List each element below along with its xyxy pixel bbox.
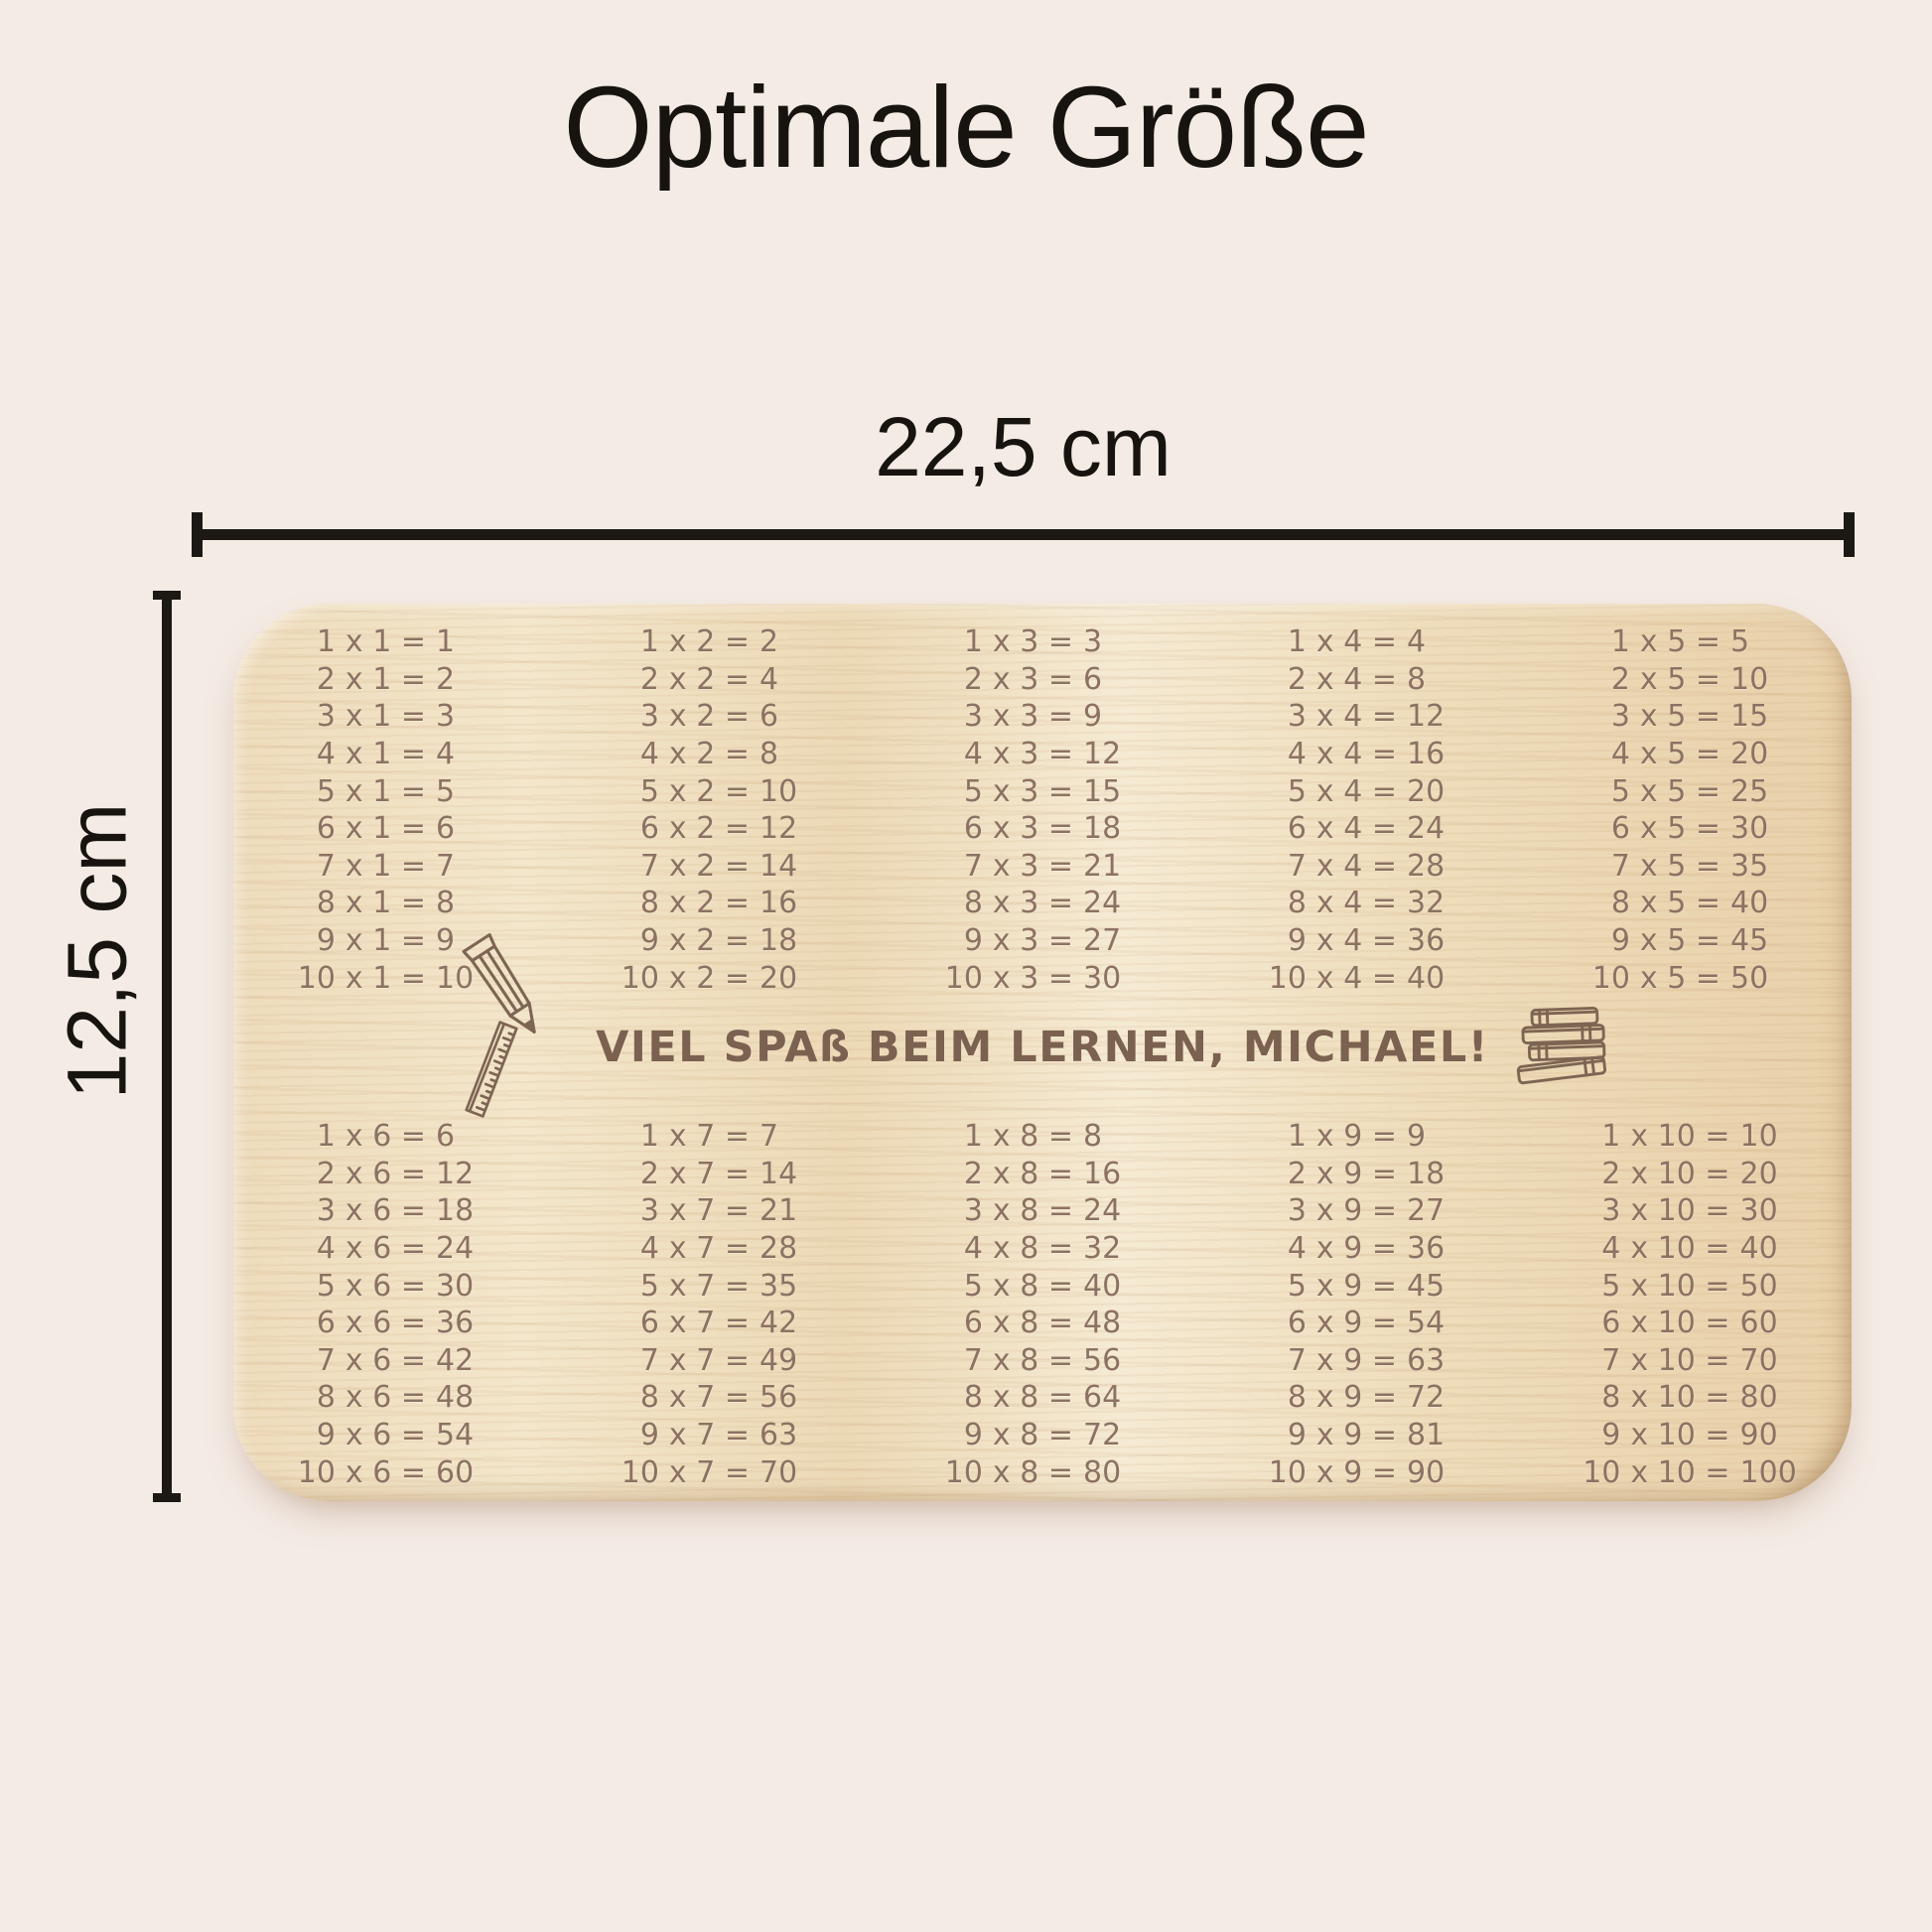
- operator-and-factor: x 6 =: [345, 1193, 426, 1228]
- operator-and-factor: x 2 =: [669, 662, 750, 697]
- equation: 9x 3 =27: [945, 922, 1140, 960]
- operator-and-factor: x 10 =: [1630, 1119, 1729, 1154]
- equation: 5x 2 =10: [621, 772, 816, 810]
- operator-and-factor: x 9 =: [1316, 1343, 1397, 1378]
- equation: 4x 6 =24: [298, 1230, 492, 1268]
- product: 32: [1407, 886, 1463, 920]
- product: 20: [1407, 774, 1463, 809]
- equation: 10x 5 =50: [1592, 959, 1787, 997]
- operator-and-factor: x 6 =: [345, 1269, 426, 1304]
- operator-and-factor: x 7 =: [669, 1157, 750, 1191]
- product: 42: [759, 1306, 816, 1340]
- equation: 7x 7 =49: [621, 1342, 816, 1380]
- operator-and-factor: x 7 =: [669, 1306, 750, 1340]
- equation: 3x 10 =30: [1583, 1192, 1797, 1230]
- product: 8: [759, 737, 816, 771]
- product: 7: [759, 1119, 816, 1154]
- multiplicand: 3: [621, 1193, 659, 1228]
- product: 25: [1730, 774, 1787, 809]
- product: 48: [436, 1380, 492, 1415]
- product: 50: [1730, 961, 1787, 996]
- product: 3: [1083, 624, 1140, 659]
- operator-and-factor: x 7 =: [669, 1269, 750, 1304]
- multiplicand: 1: [1592, 624, 1630, 659]
- product: 45: [1730, 923, 1787, 958]
- product: 63: [759, 1418, 816, 1452]
- multiplicand: 5: [621, 774, 659, 809]
- product: 16: [1407, 737, 1463, 771]
- operator-and-factor: x 1 =: [345, 624, 426, 659]
- multiplicand: 6: [1269, 811, 1307, 846]
- multiplicand: 6: [1269, 1306, 1307, 1340]
- equation: 8x 4 =32: [1269, 885, 1463, 922]
- operator-and-factor: x 3 =: [993, 811, 1073, 846]
- product: 63: [1407, 1343, 1463, 1378]
- equation: 5x 7 =35: [621, 1267, 816, 1305]
- multiplicand: 2: [298, 662, 336, 697]
- product: 18: [1083, 811, 1140, 846]
- operator-and-factor: x 6 =: [345, 1306, 426, 1340]
- multiplicand: 9: [945, 923, 983, 958]
- multiplicand: 7: [1269, 849, 1307, 884]
- multiplicand: 8: [621, 886, 659, 920]
- operator-and-factor: x 3 =: [993, 886, 1073, 920]
- product: 2: [436, 662, 492, 697]
- operator-and-factor: x 1 =: [345, 774, 426, 809]
- multiplicand: 5: [1592, 774, 1630, 809]
- operator-and-factor: x 7 =: [669, 1380, 750, 1415]
- equation: 5x 9 =45: [1269, 1267, 1463, 1305]
- multiplicand: 7: [1583, 1343, 1620, 1378]
- equation: 1x 10 =10: [1583, 1118, 1797, 1156]
- operator-and-factor: x 8 =: [993, 1269, 1073, 1304]
- product: 3: [436, 699, 492, 734]
- equation: 5x 3 =15: [945, 772, 1140, 810]
- product: 30: [436, 1269, 492, 1304]
- product: 12: [1083, 737, 1140, 771]
- operator-and-factor: x 9 =: [1316, 1157, 1397, 1191]
- multiplicand: 6: [621, 811, 659, 846]
- product: 60: [1740, 1306, 1797, 1340]
- times-table-1: 1x 1 =12x 1 =23x 1 =34x 1 =45x 1 =56x 1 …: [233, 623, 557, 997]
- product: 10: [759, 774, 816, 809]
- times-table-9: 1x 9 =92x 9 =183x 9 =274x 9 =365x 9 =456…: [1204, 1118, 1528, 1491]
- product: 80: [1740, 1380, 1797, 1415]
- page-title: Optimale Größe: [0, 62, 1932, 194]
- multiplicand: 8: [298, 1380, 336, 1415]
- equation: 1x 5 =5: [1592, 623, 1787, 661]
- multiplicand: 3: [1269, 1193, 1307, 1228]
- operator-and-factor: x 7 =: [669, 1343, 750, 1378]
- operator-and-factor: x 1 =: [345, 886, 426, 920]
- equation: 8x 8 =64: [945, 1379, 1140, 1417]
- operator-and-factor: x 5 =: [1640, 624, 1721, 659]
- equation: 1x 9 =9: [1269, 1118, 1463, 1156]
- equation: 5x 8 =40: [945, 1267, 1140, 1305]
- equation: 8x 6 =48: [298, 1379, 492, 1417]
- product: 72: [1083, 1418, 1140, 1452]
- product: 5: [436, 774, 492, 809]
- product: 20: [1740, 1157, 1797, 1191]
- equation: 9x 2 =18: [621, 922, 816, 960]
- product: 20: [1730, 737, 1787, 771]
- multiplicand: 4: [945, 1231, 983, 1266]
- multiplicand: 6: [298, 811, 336, 846]
- operator-and-factor: x 10 =: [1630, 1418, 1729, 1452]
- multiplicand: 2: [945, 1157, 983, 1191]
- operator-and-factor: x 4 =: [1316, 961, 1397, 996]
- operator-and-factor: x 9 =: [1316, 1418, 1397, 1452]
- product: 30: [1083, 961, 1140, 996]
- equation: 8x 5 =40: [1592, 885, 1787, 922]
- multiplicand: 5: [945, 774, 983, 809]
- product: 8: [1083, 1119, 1140, 1154]
- equation: 5x 10 =50: [1583, 1267, 1797, 1305]
- equation: 7x 3 =21: [945, 848, 1140, 886]
- product: 40: [1730, 886, 1787, 920]
- multiplicand: 8: [1592, 886, 1630, 920]
- multiplicand: 2: [1269, 1157, 1307, 1191]
- product: 15: [1083, 774, 1140, 809]
- operator-and-factor: x 6 =: [345, 1157, 426, 1191]
- multiplicand: 10: [945, 961, 983, 996]
- operator-and-factor: x 8 =: [993, 1343, 1073, 1378]
- operator-and-factor: x 7 =: [669, 1418, 750, 1452]
- equation: 6x 8 =48: [945, 1305, 1140, 1342]
- multiplicand: 4: [621, 737, 659, 771]
- product: 42: [436, 1343, 492, 1378]
- operator-and-factor: x 3 =: [993, 699, 1073, 734]
- multiplicand: 10: [1269, 1455, 1307, 1490]
- operator-and-factor: x 10 =: [1630, 1231, 1729, 1266]
- multiplicand: 1: [1269, 1119, 1307, 1154]
- product: 30: [1730, 811, 1787, 846]
- multiplicand: 7: [1269, 1343, 1307, 1378]
- product: 16: [1083, 1157, 1140, 1191]
- product: 48: [1083, 1306, 1140, 1340]
- product: 24: [1083, 886, 1140, 920]
- product: 70: [1740, 1343, 1797, 1378]
- multiplicand: 2: [945, 662, 983, 697]
- times-table-7: 1x 7 =72x 7 =143x 7 =214x 7 =285x 7 =356…: [557, 1118, 881, 1491]
- equation: 10x 6 =60: [298, 1453, 492, 1491]
- equation: 2x 5 =10: [1592, 661, 1787, 699]
- operator-and-factor: x 3 =: [993, 624, 1073, 659]
- product: 56: [1083, 1343, 1140, 1378]
- operator-and-factor: x 7 =: [669, 1455, 750, 1490]
- product: 90: [1740, 1418, 1797, 1452]
- operator-and-factor: x 10 =: [1630, 1269, 1729, 1304]
- multiplicand: 5: [1583, 1269, 1620, 1304]
- equation: 1x 7 =7: [621, 1118, 816, 1156]
- equation: 2x 1 =2: [298, 661, 492, 699]
- multiplicand: 5: [298, 1269, 336, 1304]
- equation: 6x 3 =18: [945, 810, 1140, 848]
- equation: 2x 3 =6: [945, 661, 1140, 699]
- product: 18: [1407, 1157, 1463, 1191]
- multiplicand: 7: [298, 1343, 336, 1378]
- product: 18: [759, 923, 816, 958]
- multiplicand: 3: [945, 699, 983, 734]
- multiplicand: 4: [1592, 737, 1630, 771]
- multiplicand: 4: [1269, 737, 1307, 771]
- product: 70: [759, 1455, 816, 1490]
- operator-and-factor: x 6 =: [345, 1119, 426, 1154]
- equation: 6x 1 =6: [298, 810, 492, 848]
- multiplicand: 4: [1583, 1231, 1620, 1266]
- times-table-8: 1x 8 =82x 8 =163x 8 =244x 8 =325x 8 =406…: [881, 1118, 1204, 1491]
- operator-and-factor: x 8 =: [993, 1455, 1073, 1490]
- equation: 10x 8 =80: [945, 1453, 1140, 1491]
- multiplicand: 7: [945, 1343, 983, 1378]
- operator-and-factor: x 2 =: [669, 923, 750, 958]
- operator-and-factor: x 3 =: [993, 961, 1073, 996]
- equation: 10x 3 =30: [945, 959, 1140, 997]
- product: 81: [1407, 1418, 1463, 1452]
- product: 24: [1407, 811, 1463, 846]
- multiplicand: 2: [621, 1157, 659, 1191]
- equation: 6x 6 =36: [298, 1305, 492, 1342]
- equation: 4x 4 =16: [1269, 736, 1463, 773]
- operator-and-factor: x 1 =: [345, 662, 426, 697]
- product: 64: [1083, 1380, 1140, 1415]
- equation: 3x 6 =18: [298, 1192, 492, 1230]
- multiplicand: 8: [1269, 886, 1307, 920]
- equation: 6x 9 =54: [1269, 1305, 1463, 1342]
- operator-and-factor: x 8 =: [993, 1231, 1073, 1266]
- product: 12: [436, 1157, 492, 1191]
- operator-and-factor: x 1 =: [345, 737, 426, 771]
- times-table-2: 1x 2 =22x 2 =43x 2 =64x 2 =85x 2 =106x 2…: [557, 623, 881, 997]
- equation: 7x 2 =14: [621, 848, 816, 886]
- operator-and-factor: x 4 =: [1316, 624, 1397, 659]
- equation: 4x 10 =40: [1583, 1230, 1797, 1268]
- product: 90: [1407, 1455, 1463, 1490]
- product: 40: [1407, 961, 1463, 996]
- equation: 3x 3 =9: [945, 698, 1140, 736]
- equation: 6x 2 =12: [621, 810, 816, 848]
- multiplicand: 4: [1269, 1231, 1307, 1266]
- operator-and-factor: x 6 =: [345, 1231, 426, 1266]
- operator-and-factor: x 8 =: [993, 1418, 1073, 1452]
- multiplicand: 1: [298, 624, 336, 659]
- operator-and-factor: x 10 =: [1630, 1306, 1729, 1340]
- product: 7: [436, 849, 492, 884]
- equation: 7x 6 =42: [298, 1342, 492, 1380]
- product: 50: [1740, 1269, 1797, 1304]
- operator-and-factor: x 3 =: [993, 774, 1073, 809]
- equation: 3x 9 =27: [1269, 1192, 1463, 1230]
- equation: 2x 7 =14: [621, 1156, 816, 1193]
- equation: 2x 8 =16: [945, 1156, 1140, 1193]
- operator-and-factor: x 9 =: [1316, 1306, 1397, 1340]
- equation: 9x 4 =36: [1269, 922, 1463, 960]
- product: 10: [1740, 1119, 1797, 1154]
- product: 1: [436, 624, 492, 659]
- operator-and-factor: x 9 =: [1316, 1380, 1397, 1415]
- operator-and-factor: x 6 =: [345, 1455, 426, 1490]
- multiplicand: 1: [945, 624, 983, 659]
- equation: 10x 9 =90: [1269, 1453, 1463, 1491]
- width-dimension-label: 22,5 cm: [192, 399, 1855, 495]
- equation: 1x 2 =2: [621, 623, 816, 661]
- multiplicand: 4: [621, 1231, 659, 1266]
- multiplicand: 10: [1592, 961, 1630, 996]
- operator-and-factor: x 2 =: [669, 624, 750, 659]
- product: 15: [1730, 699, 1787, 734]
- equation: 8x 1 =8: [298, 885, 492, 922]
- product: 9: [1083, 699, 1140, 734]
- operator-and-factor: x 10 =: [1630, 1193, 1729, 1228]
- equation: 5x 4 =20: [1269, 772, 1463, 810]
- product: 4: [436, 737, 492, 771]
- multiplicand: 8: [945, 886, 983, 920]
- product: 8: [436, 886, 492, 920]
- operator-and-factor: x 8 =: [993, 1157, 1073, 1191]
- operator-and-factor: x 9 =: [1316, 1193, 1397, 1228]
- equation: 1x 8 =8: [945, 1118, 1140, 1156]
- product: 16: [759, 886, 816, 920]
- equation: 8x 10 =80: [1583, 1379, 1797, 1417]
- equation: 7x 4 =28: [1269, 848, 1463, 886]
- equation: 9x 7 =63: [621, 1417, 816, 1454]
- times-table-6: 1x 6 =62x 6 =123x 6 =184x 6 =245x 6 =306…: [233, 1118, 557, 1491]
- operator-and-factor: x 8 =: [993, 1306, 1073, 1340]
- equation: 9x 8 =72: [945, 1417, 1140, 1454]
- equation: 7x 8 =56: [945, 1342, 1140, 1380]
- operator-and-factor: x 1 =: [345, 811, 426, 846]
- multiplicand: 3: [621, 699, 659, 734]
- product: 12: [1407, 699, 1463, 734]
- equation: 3x 7 =21: [621, 1192, 816, 1230]
- equation: 1x 6 =6: [298, 1118, 492, 1156]
- multiplicand: 5: [1269, 1269, 1307, 1304]
- product: 32: [1083, 1231, 1140, 1266]
- multiplicand: 6: [298, 1306, 336, 1340]
- product: 54: [436, 1418, 492, 1452]
- width-dimension-end-cap-left: [192, 512, 203, 557]
- equation: 2x 10 =20: [1583, 1156, 1797, 1193]
- equation: 5x 6 =30: [298, 1267, 492, 1305]
- operator-and-factor: x 10 =: [1630, 1380, 1729, 1415]
- operator-and-factor: x 4 =: [1316, 923, 1397, 958]
- multiplicand: 2: [298, 1157, 336, 1191]
- operator-and-factor: x 4 =: [1316, 811, 1397, 846]
- operator-and-factor: x 8 =: [993, 1380, 1073, 1415]
- multiplicand: 8: [1269, 1380, 1307, 1415]
- times-table-10: 1x 10 =102x 10 =203x 10 =304x 10 =405x 1…: [1528, 1118, 1852, 1491]
- multiplicand: 7: [1592, 849, 1630, 884]
- product: 28: [759, 1231, 816, 1266]
- times-table-3: 1x 3 =32x 3 =63x 3 =94x 3 =125x 3 =156x …: [881, 623, 1204, 997]
- multiplicand: 2: [1269, 662, 1307, 697]
- equation: 4x 2 =8: [621, 736, 816, 773]
- width-dimension-line: [192, 529, 1855, 540]
- operator-and-factor: x 1 =: [345, 699, 426, 734]
- product: 4: [1407, 624, 1463, 659]
- multiplicand: 10: [621, 1455, 659, 1490]
- product: 20: [759, 961, 816, 996]
- operator-and-factor: x 2 =: [669, 699, 750, 734]
- operator-and-factor: x 4 =: [1316, 699, 1397, 734]
- multiplicand: 9: [1583, 1418, 1620, 1452]
- multiplicand: 2: [1592, 662, 1630, 697]
- multiplication-tables-bottom: 1x 6 =62x 6 =123x 6 =184x 6 =245x 6 =306…: [233, 1118, 1852, 1491]
- equation: 10x 4 =40: [1269, 959, 1463, 997]
- equation: 1x 3 =3: [945, 623, 1140, 661]
- equation: 4x 7 =28: [621, 1230, 816, 1268]
- product: 27: [1407, 1193, 1463, 1228]
- equation: 5x 1 =5: [298, 772, 492, 810]
- operator-and-factor: x 5 =: [1640, 849, 1721, 884]
- multiplicand: 4: [945, 737, 983, 771]
- times-table-5: 1x 5 =52x 5 =103x 5 =154x 5 =205x 5 =256…: [1528, 623, 1852, 997]
- operator-and-factor: x 1 =: [345, 923, 426, 958]
- operator-and-factor: x 3 =: [993, 662, 1073, 697]
- operator-and-factor: x 2 =: [669, 849, 750, 884]
- equation: 9x 5 =45: [1592, 922, 1787, 960]
- multiplicand: 8: [621, 1380, 659, 1415]
- multiplicand: 9: [945, 1418, 983, 1452]
- height-dimension-label: 12,5 cm: [50, 803, 146, 1100]
- multiplicand: 1: [621, 624, 659, 659]
- equation: 3x 5 =15: [1592, 698, 1787, 736]
- multiplicand: 6: [945, 1306, 983, 1340]
- operator-and-factor: x 5 =: [1640, 662, 1721, 697]
- equation: 2x 6 =12: [298, 1156, 492, 1193]
- operator-and-factor: x 4 =: [1316, 886, 1397, 920]
- equation: 2x 9 =18: [1269, 1156, 1463, 1193]
- multiplicand: 3: [298, 1193, 336, 1228]
- equation: 8x 9 =72: [1269, 1379, 1463, 1417]
- product: 2: [759, 624, 816, 659]
- multiplicand: 5: [1269, 774, 1307, 809]
- multiplicand: 7: [621, 1343, 659, 1378]
- product: 60: [436, 1455, 492, 1490]
- multiplicand: 6: [1592, 811, 1630, 846]
- multiplicand: 3: [1269, 699, 1307, 734]
- equation: 3x 2 =6: [621, 698, 816, 736]
- operator-and-factor: x 4 =: [1316, 774, 1397, 809]
- product: 40: [1740, 1231, 1797, 1266]
- operator-and-factor: x 5 =: [1640, 737, 1721, 771]
- operator-and-factor: x 1 =: [345, 849, 426, 884]
- multiplicand: 1: [945, 1119, 983, 1154]
- equation: 10x 2 =20: [621, 959, 816, 997]
- operator-and-factor: x 4 =: [1316, 737, 1397, 771]
- multiplicand: 5: [621, 1269, 659, 1304]
- product: 24: [1083, 1193, 1140, 1228]
- product: 6: [436, 811, 492, 846]
- equation: 10x 7 =70: [621, 1453, 816, 1491]
- multiplicand: 10: [298, 1455, 336, 1490]
- multiplicand: 3: [1592, 699, 1630, 734]
- operator-and-factor: x 8 =: [993, 1193, 1073, 1228]
- operator-and-factor: x 10 =: [1630, 1343, 1729, 1378]
- product: 100: [1740, 1455, 1797, 1490]
- multiplicand: 8: [945, 1380, 983, 1415]
- multiplicand: 5: [298, 774, 336, 809]
- product: 6: [1083, 662, 1140, 697]
- multiplicand: 7: [621, 849, 659, 884]
- equation: 3x 1 =3: [298, 698, 492, 736]
- product: 6: [436, 1119, 492, 1154]
- multiplicand: 9: [298, 923, 336, 958]
- product: 80: [1083, 1455, 1140, 1490]
- multiplicand: 10: [298, 961, 336, 996]
- product: 5: [1730, 624, 1787, 659]
- multiplicand: 4: [298, 737, 336, 771]
